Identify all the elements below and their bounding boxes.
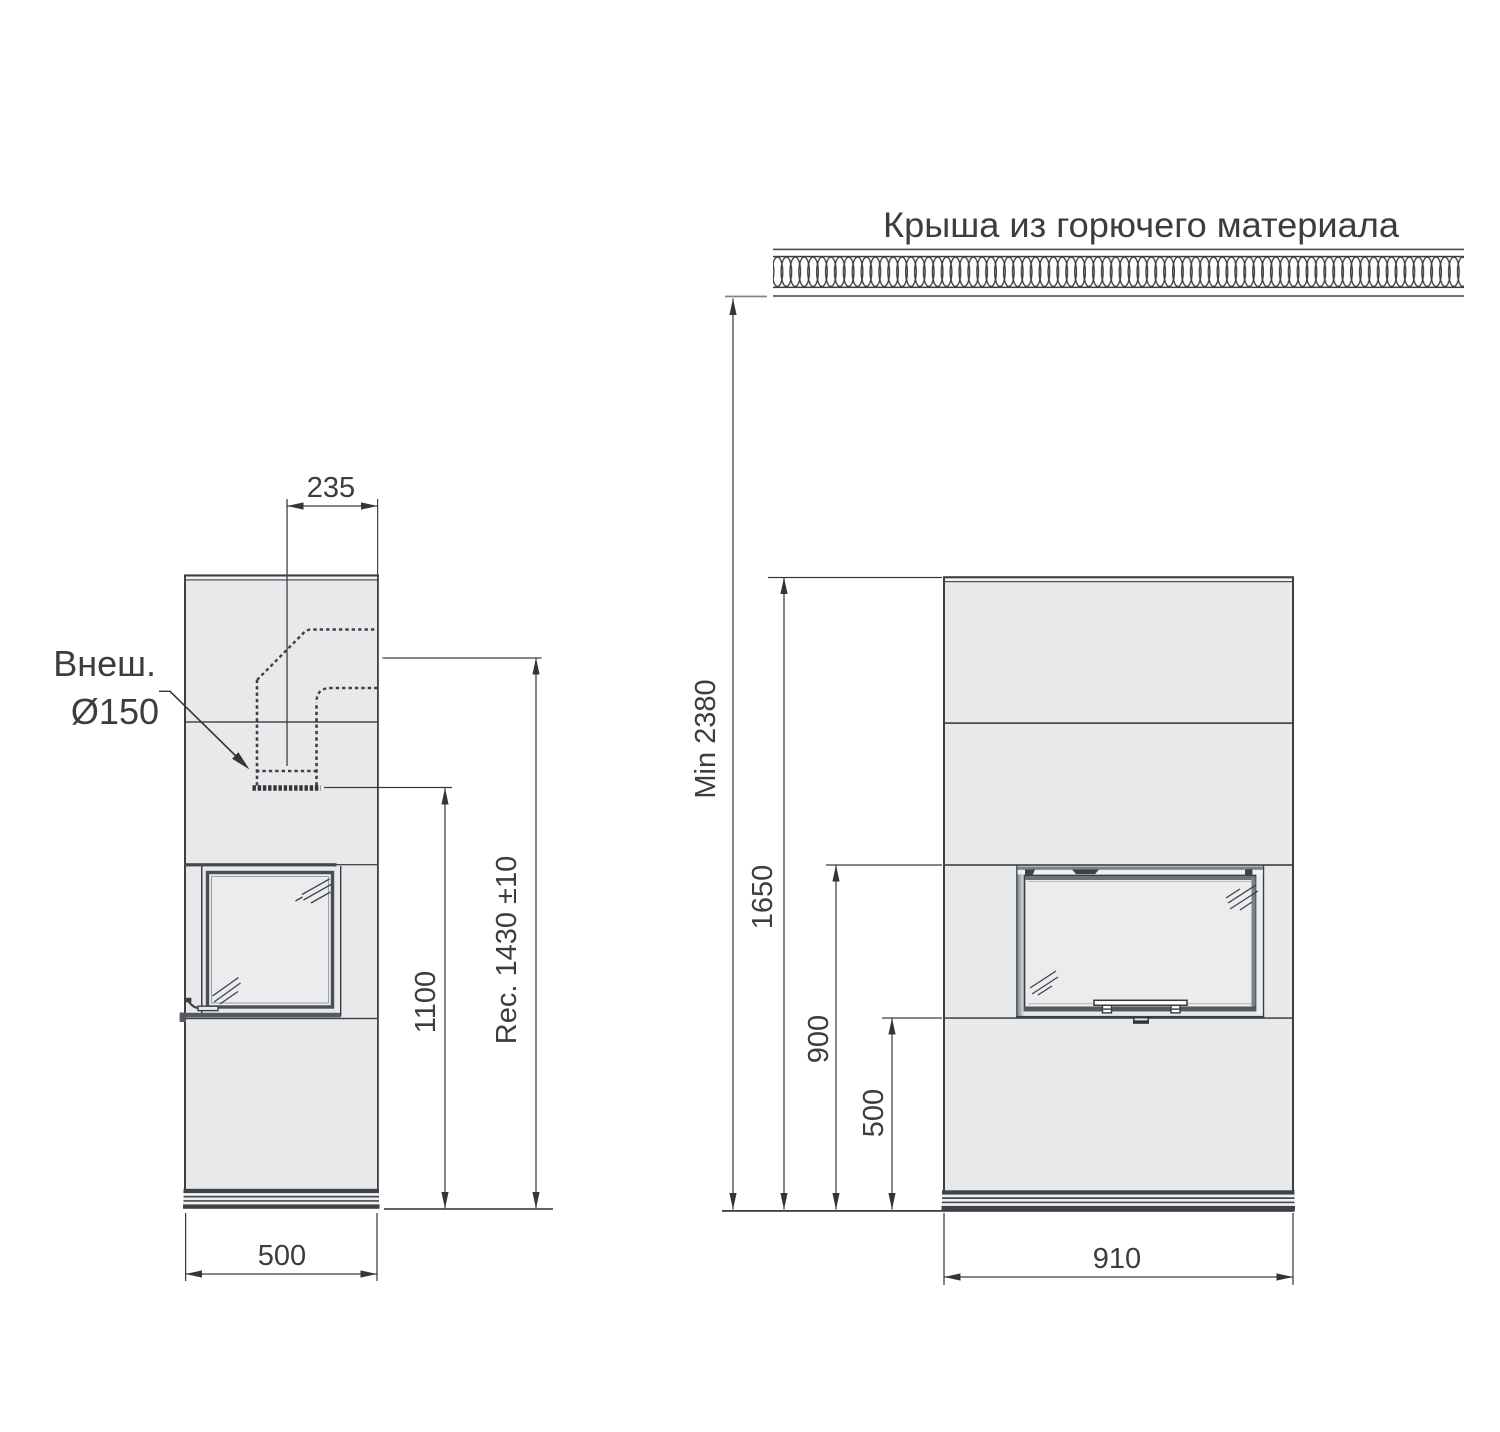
- svg-text:Min 2380: Min 2380: [690, 679, 722, 798]
- svg-text:900: 900: [803, 1015, 835, 1063]
- svg-text:500: 500: [858, 1089, 890, 1137]
- svg-text:235: 235: [307, 472, 355, 504]
- svg-text:Внеш.: Внеш.: [53, 643, 156, 684]
- svg-text:Ø150: Ø150: [71, 691, 159, 732]
- svg-text:910: 910: [1093, 1243, 1141, 1275]
- svg-text:1650: 1650: [747, 865, 779, 930]
- svg-text:500: 500: [258, 1240, 306, 1272]
- svg-text:1100: 1100: [410, 971, 442, 1033]
- svg-text:Rec. 1430 ±10: Rec. 1430 ±10: [491, 856, 523, 1044]
- svg-text:Крыша из горючего материала: Крыша из горючего материала: [883, 206, 1400, 245]
